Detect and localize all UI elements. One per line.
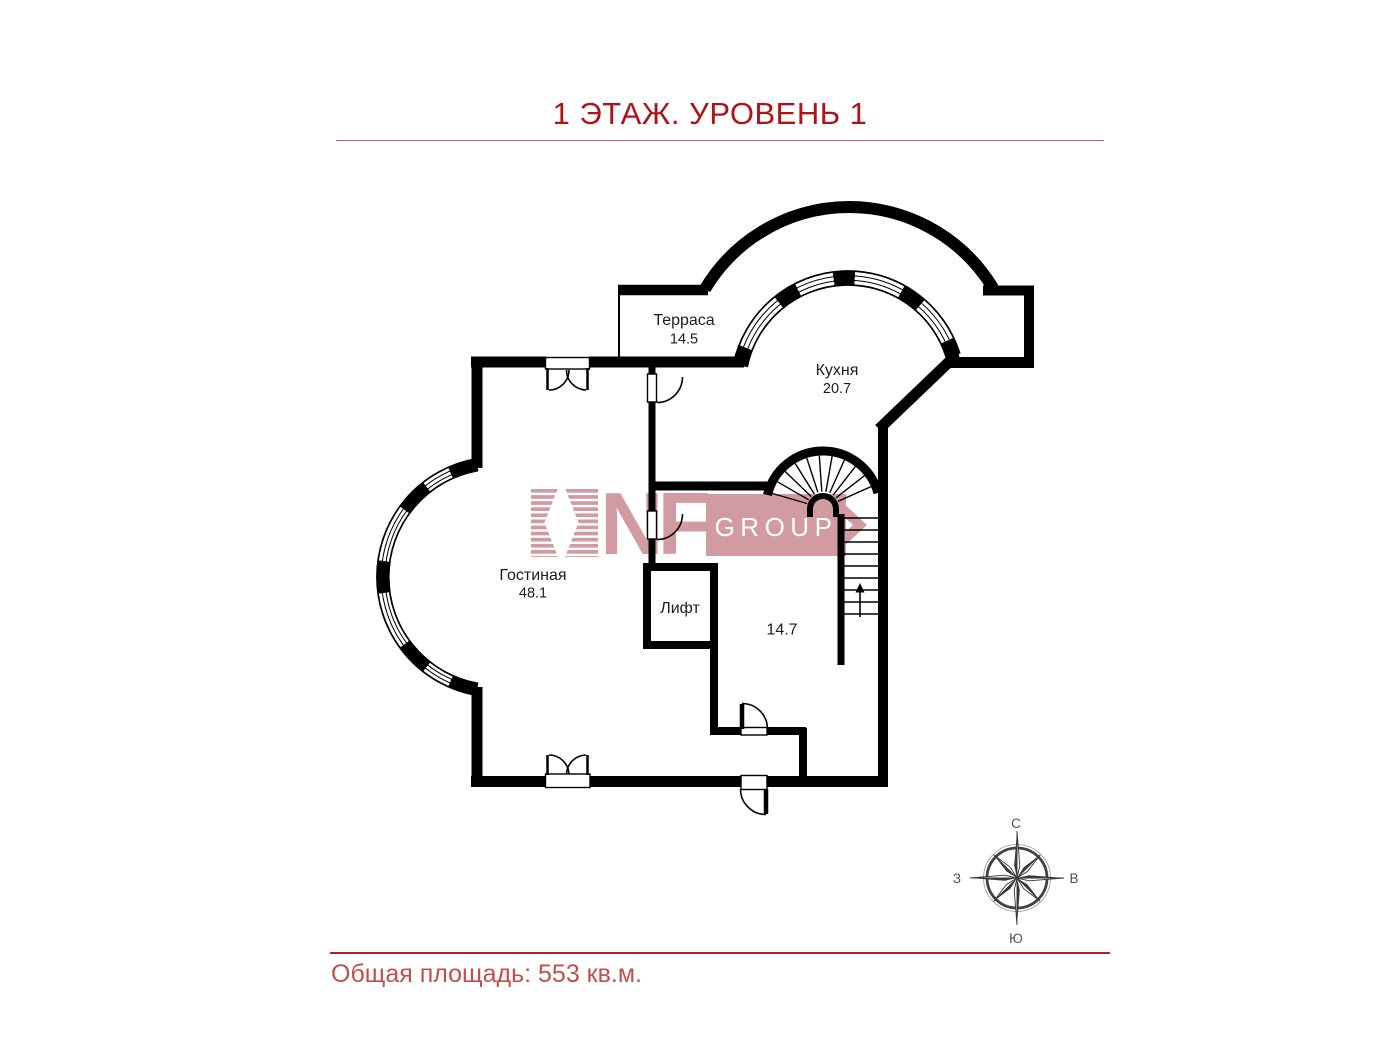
compass-label-south: Ю bbox=[1009, 931, 1023, 946]
room-area-kitchen: 20.7 bbox=[823, 381, 851, 397]
room-area-terrace: 14.5 bbox=[670, 332, 698, 348]
compass-labels: С Ю З В bbox=[953, 816, 1079, 946]
watermark-group-text: GROUP bbox=[715, 512, 838, 542]
watermark-stripes-left bbox=[525, 489, 605, 560]
compass-label-north: С bbox=[1011, 816, 1021, 831]
room-label-living: Гостиная bbox=[499, 567, 566, 584]
room-label-elevator: Лифт bbox=[660, 600, 700, 617]
walls-and-openings-layer bbox=[377, 207, 1034, 814]
footer-rule bbox=[330, 952, 1110, 954]
room-label-kitchen: Кухня bbox=[816, 362, 859, 379]
room-area-living: 48.1 bbox=[519, 586, 547, 602]
compass-label-east: В bbox=[1069, 871, 1078, 886]
watermark-stripes-right bbox=[525, 489, 605, 560]
total-area-text: Общая площадь: 553 кв.м. bbox=[331, 960, 642, 989]
room-area-hall: 14.7 bbox=[766, 622, 797, 639]
floorplan-page: 1 ЭТАЖ. УРОВЕНЬ 1 NF GROUP Терраса 14.5 … bbox=[0, 0, 1400, 1050]
compass-rose-icon bbox=[970, 831, 1064, 925]
compass-label-west: З bbox=[953, 871, 961, 886]
floor-plan-drawing: NF GROUP Терраса 14.5 Кухня 20.7 Гостина… bbox=[0, 0, 1400, 1050]
room-label-terrace: Терраса bbox=[653, 312, 714, 329]
